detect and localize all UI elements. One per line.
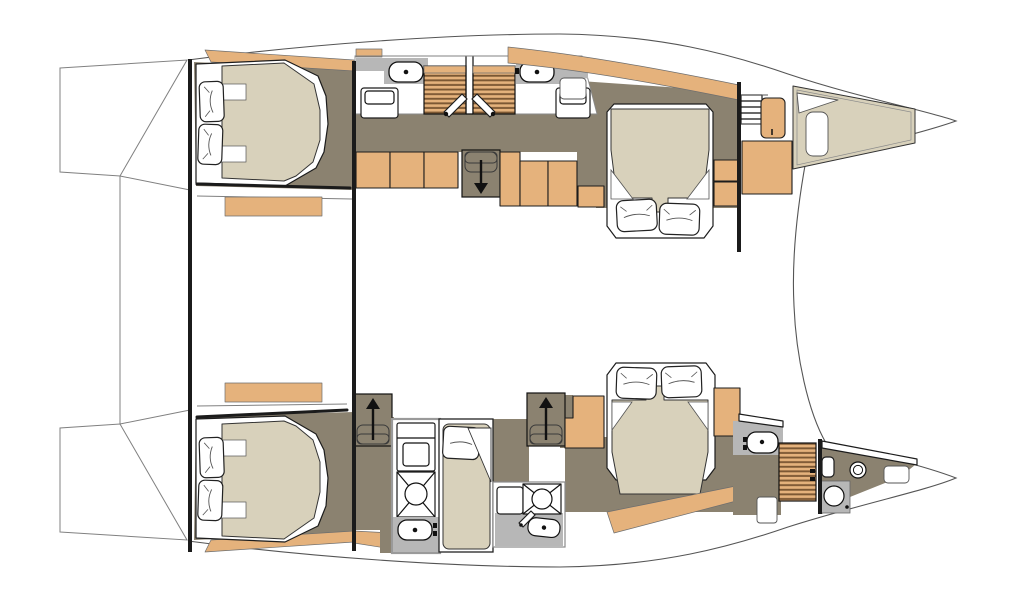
louver-top [473, 66, 515, 73]
cabinet [500, 152, 520, 206]
handle [810, 469, 815, 473]
sink [527, 517, 561, 538]
pillow [616, 367, 657, 399]
cabinet [356, 152, 390, 188]
deck-line [197, 404, 347, 406]
corridor-floor [355, 114, 600, 152]
side-cabinet [714, 182, 739, 206]
pillow [199, 437, 224, 478]
lower-bow [733, 414, 917, 523]
wc [497, 487, 523, 514]
cabinet [520, 161, 548, 206]
side-cabinet [714, 160, 739, 181]
round-basin [850, 462, 866, 478]
pillow [659, 203, 700, 235]
pillow [661, 366, 702, 398]
shower-pan [523, 484, 561, 514]
shower-pan [397, 472, 435, 517]
transom-platform-lower [60, 424, 187, 540]
transom-platform-upper [60, 60, 187, 176]
upper-corridor [356, 150, 604, 207]
tap [743, 445, 747, 450]
cockpit-locker [225, 383, 322, 402]
pillow [198, 124, 223, 165]
pillow [198, 480, 223, 521]
double-bed [222, 421, 320, 539]
lower-bathroom [493, 482, 565, 547]
seat [560, 78, 586, 99]
stairs-up-aft [354, 394, 392, 446]
floor [493, 419, 529, 485]
seat [757, 497, 777, 523]
catamaran-floor-plan [0, 0, 1024, 600]
bow-locker [742, 141, 792, 194]
sink [389, 62, 423, 82]
upper-hull [194, 47, 915, 238]
transom-lines [120, 176, 190, 424]
cockpit-locker [225, 197, 322, 216]
bow-locker [884, 466, 909, 483]
lower-hull [194, 363, 917, 553]
inboard-deck-curve [793, 160, 826, 443]
tap [515, 68, 519, 74]
bow-locker [761, 98, 785, 138]
upper-aft-cabin [194, 50, 354, 216]
mattress-notch [221, 502, 246, 518]
sink [398, 520, 432, 540]
shower-corner [820, 481, 850, 513]
mattress-notch [221, 84, 246, 100]
cabinet [578, 186, 604, 207]
double-bed [222, 63, 320, 181]
tap [433, 531, 437, 536]
door-hinge [491, 112, 495, 116]
floor-plan-drawing [0, 0, 1024, 600]
wc [361, 88, 398, 118]
mattress-notch [221, 146, 246, 162]
stairs-up-mid [527, 393, 565, 446]
galley-column [392, 419, 440, 553]
cabinet [390, 152, 424, 188]
floor-cell [577, 150, 607, 186]
door-hinge [519, 523, 523, 527]
wc [822, 457, 834, 477]
cabinet [548, 161, 577, 206]
bow-ladder [741, 95, 762, 124]
single-berth [439, 419, 493, 552]
sink [747, 432, 778, 453]
louver-top [424, 66, 466, 73]
tap [433, 523, 437, 528]
pillow [616, 199, 658, 232]
door-hinge [444, 112, 448, 116]
mattress-notch [221, 440, 246, 456]
stairs-down [462, 150, 500, 197]
handle [810, 477, 815, 481]
cabinet [424, 152, 458, 188]
tap [743, 437, 747, 442]
pillow [199, 81, 224, 122]
bow-hatch [806, 112, 828, 156]
